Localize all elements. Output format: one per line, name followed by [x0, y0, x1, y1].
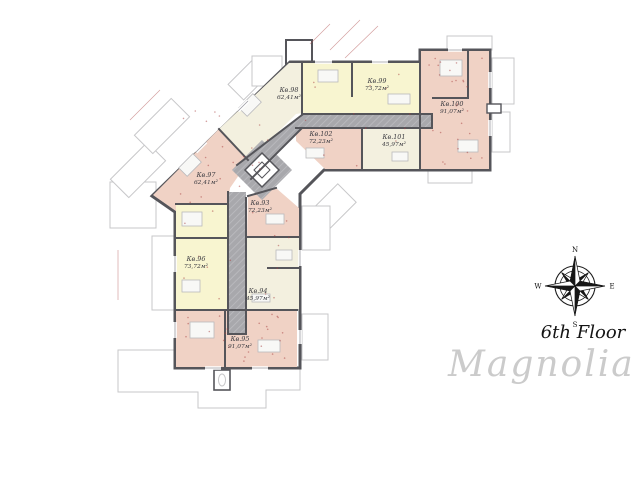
side-door-marker	[487, 104, 501, 113]
area-kv-93: 72,23м²	[248, 207, 273, 214]
corridor-top-wing	[302, 114, 433, 128]
area-kv-97: 62,41м²	[194, 179, 219, 186]
compass-west-label: W	[534, 283, 542, 291]
balcony-outline	[134, 98, 189, 153]
label-kv-97: Кв.97	[196, 171, 217, 179]
area-kv-98: 62,41м²	[277, 94, 302, 101]
label-kv-100: Кв.100	[440, 100, 464, 108]
label-kv-98: Кв.98	[279, 86, 299, 94]
area-kv-100: 91,07м²	[440, 108, 465, 115]
label-kv-94: Кв.94	[248, 287, 268, 295]
compass-east-label: E	[609, 283, 614, 291]
area-kv-94: 45,97м²	[245, 295, 271, 302]
label-kv-102: Кв.102	[309, 130, 333, 138]
floor-title: 6th Floor	[528, 322, 638, 343]
balcony-outline	[302, 206, 330, 250]
balcony-outline	[152, 236, 174, 310]
stair-bump	[286, 40, 312, 64]
balcony-outline	[492, 58, 514, 104]
compass-spike-s	[570, 286, 580, 316]
compass-spike-n	[570, 256, 580, 286]
entrance-marker	[214, 370, 230, 390]
floor-plan-drawing: Кв.93 72,23м² Кв.94 45,97м² Кв.95 91,07м…	[0, 0, 640, 480]
corridor-vertical-wing	[228, 192, 246, 334]
compass-rose: N E S W	[534, 246, 614, 329]
compass-spike-e	[575, 281, 605, 291]
balcony-outline	[447, 36, 492, 50]
compass-spike-w	[545, 281, 575, 291]
label-kv-95: Кв.95	[230, 335, 250, 343]
label-kv-99: Кв.99	[367, 77, 387, 85]
area-kv-95: 91,07м²	[228, 343, 253, 350]
floor-plan-page: Кв.93 72,23м² Кв.94 45,97м² Кв.95 91,07м…	[0, 0, 640, 480]
balcony-outline	[428, 170, 472, 183]
area-kv-96: 73,72м²	[184, 263, 209, 270]
label-kv-93: Кв.93	[250, 199, 270, 207]
label-kv-96: Кв.96	[186, 255, 206, 263]
label-kv-101: Кв.101	[382, 133, 406, 141]
area-kv-101: 45,97м²	[381, 141, 407, 148]
balcony-outline	[302, 314, 328, 360]
brand-watermark: Magnolia	[448, 344, 633, 385]
balcony-outline	[492, 112, 510, 152]
area-kv-99: 73,72м²	[365, 85, 390, 92]
area-kv-102: 72,23м²	[309, 138, 334, 145]
compass-north-label: N	[572, 246, 578, 254]
